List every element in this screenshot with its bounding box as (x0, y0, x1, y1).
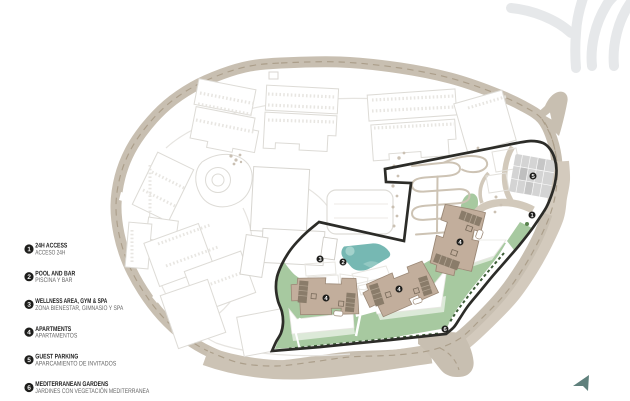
svg-text:APARCAMIENTO DE INVITADOS: APARCAMIENTO DE INVITADOS (35, 360, 116, 367)
svg-text:ACCESO 24H: ACCESO 24H (35, 250, 65, 257)
svg-text:APARTAMENTOS: APARTAMENTOS (35, 333, 77, 340)
svg-text:JARDINES CON VEGETACIÓN MEDITE: JARDINES CON VEGETACIÓN MEDITERRANEA (35, 387, 149, 395)
svg-text:ZONA BIENESTAR, GIMNASIO Y SPA: ZONA BIENESTAR, GIMNASIO Y SPA (35, 305, 123, 312)
svg-text:PISCINA Y BAR: PISCINA Y BAR (35, 277, 72, 284)
